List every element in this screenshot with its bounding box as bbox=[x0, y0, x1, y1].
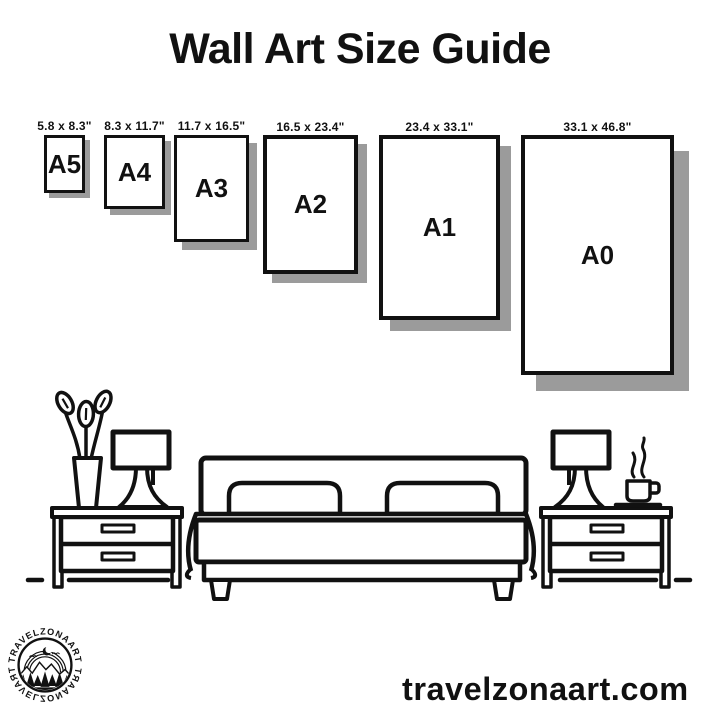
frame-dimensions-label: 8.3 x 11.7" bbox=[104, 119, 165, 133]
page-title: Wall Art Size Guide bbox=[0, 28, 720, 71]
size-frame-a2: 16.5 x 23.4" A2 bbox=[263, 135, 358, 274]
frame-dimensions-label: 33.1 x 46.8" bbox=[563, 120, 631, 134]
pillow-left bbox=[229, 483, 340, 514]
coffee-cup-icon bbox=[616, 438, 660, 505]
frame-size-label: A0 bbox=[581, 240, 614, 271]
frame-size-label: A1 bbox=[423, 212, 456, 243]
size-frame-a4: 8.3 x 11.7" A4 bbox=[104, 135, 165, 209]
frame-size-label: A4 bbox=[118, 157, 151, 188]
steam-icon bbox=[642, 438, 645, 477]
frame-dimensions-label: 23.4 x 33.1" bbox=[405, 120, 473, 134]
size-frame-a3: 11.7 x 16.5" A3 bbox=[174, 135, 249, 242]
bed-foot-left bbox=[211, 580, 230, 599]
frame-dimensions-label: 11.7 x 16.5" bbox=[178, 119, 245, 133]
bed-foot-right bbox=[494, 580, 513, 599]
frame-dimensions-label: 5.8 x 8.3" bbox=[37, 119, 91, 133]
size-guide-poster: Wall Art Size Guide 5.8 x 8.3" A5 8.3 x … bbox=[0, 0, 720, 720]
table-lamp-icon bbox=[113, 432, 169, 507]
plant-icon bbox=[53, 389, 114, 508]
steam-icon bbox=[632, 453, 635, 477]
pillow-right bbox=[387, 483, 498, 514]
size-frame-a5: 5.8 x 8.3" A5 bbox=[44, 135, 85, 193]
frame-size-label: A2 bbox=[294, 189, 327, 220]
size-frame-a1: 23.4 x 33.1" A1 bbox=[379, 135, 500, 320]
table-lamp-icon bbox=[553, 432, 609, 507]
website-text: travelzonaart.com bbox=[402, 673, 689, 706]
bed-icon bbox=[187, 458, 535, 599]
size-frame-a0: 33.1 x 46.8" A0 bbox=[521, 135, 674, 375]
frame-size-label: A3 bbox=[195, 173, 228, 204]
bedroom-illustration bbox=[0, 380, 720, 608]
frame-size-label: A5 bbox=[48, 149, 81, 180]
brand-logo: ·TRAVELZONAART· ·TRAVELZONAART· bbox=[4, 624, 86, 706]
nightstand-icon bbox=[52, 508, 182, 587]
frame-dimensions-label: 16.5 x 23.4" bbox=[276, 120, 344, 134]
nightstand-icon bbox=[541, 508, 671, 587]
